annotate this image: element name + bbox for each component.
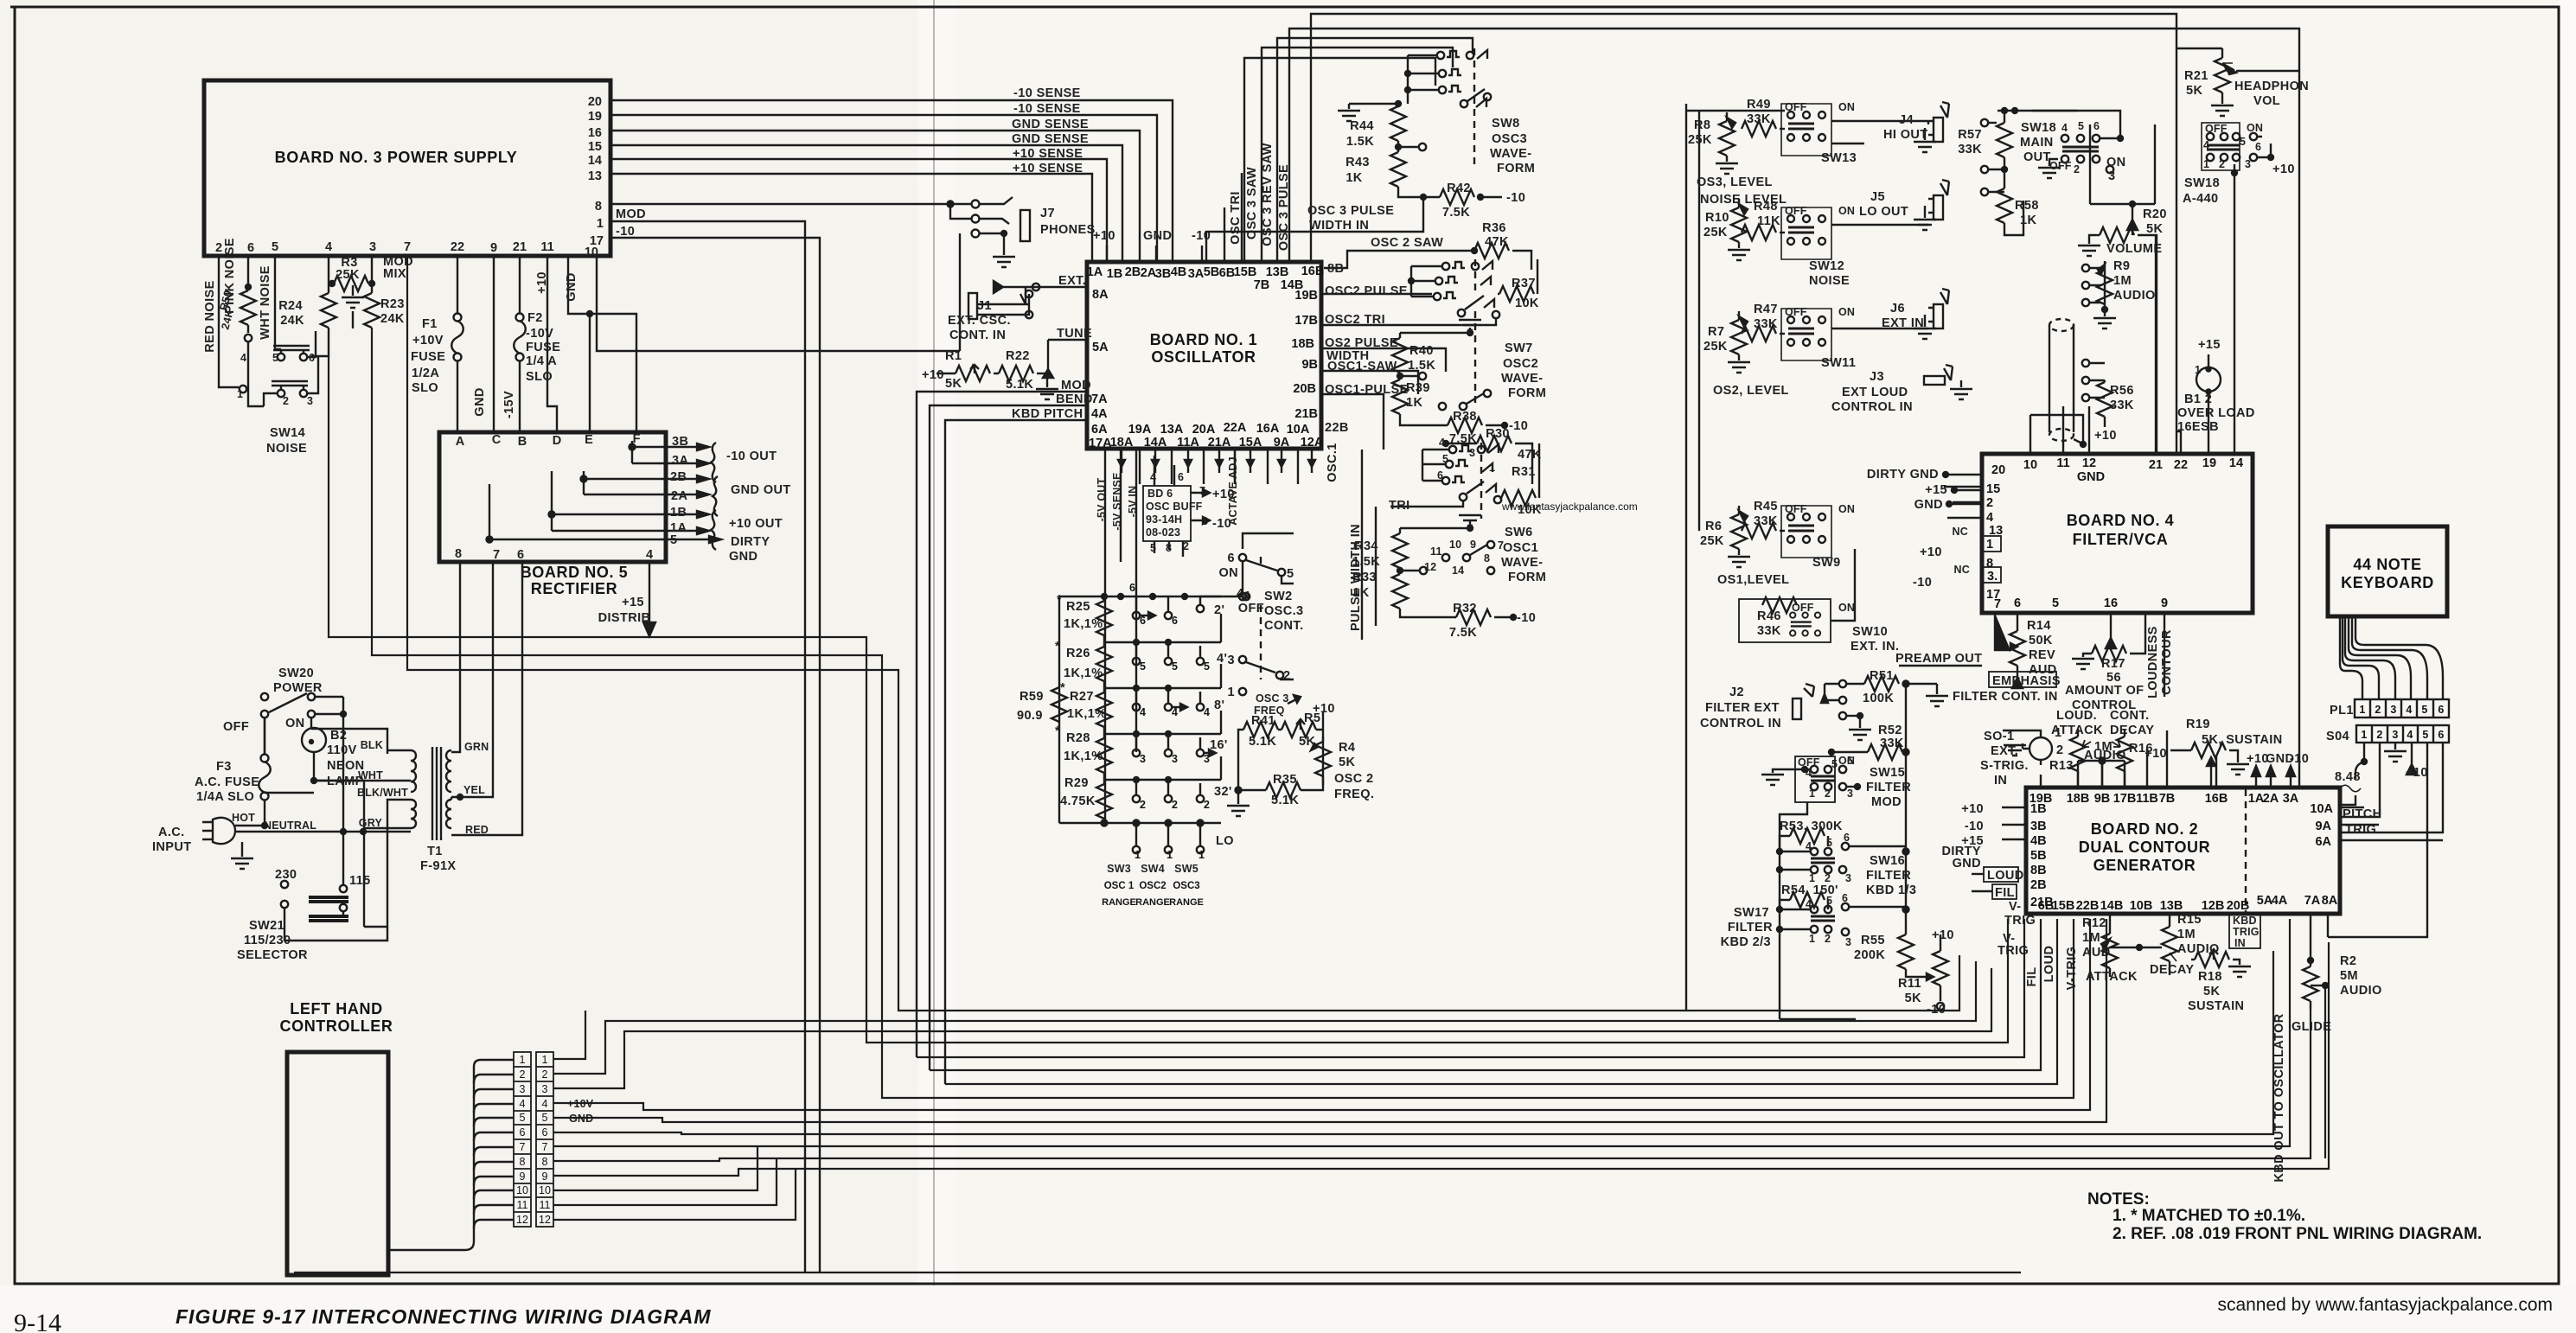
svg-text:R40: R40 <box>1409 344 1434 358</box>
svg-text:6: 6 <box>2255 141 2261 153</box>
svg-text:4A: 4A <box>2272 894 2288 908</box>
svg-text:6B: 6B <box>1219 266 1236 280</box>
svg-text:3B: 3B <box>672 435 688 449</box>
svg-text:8: 8 <box>595 200 602 214</box>
svg-text:HI OUT: HI OUT <box>1883 128 1928 142</box>
svg-text:2: 2 <box>1825 872 1831 884</box>
svg-text:R45: R45 <box>1754 500 1778 513</box>
svg-text:MOD: MOD <box>616 207 646 221</box>
svg-text:1: 1 <box>1489 462 1495 474</box>
svg-text:8: 8 <box>455 547 462 561</box>
svg-text:CONTROLLER: CONTROLLER <box>280 1017 393 1035</box>
svg-text:4: 4 <box>240 352 246 364</box>
svg-text:BOARD NO. 4: BOARD NO. 4 <box>2067 512 2175 529</box>
svg-text:6: 6 <box>2438 704 2444 716</box>
svg-text:R53, 300K: R53, 300K <box>1780 820 1843 833</box>
svg-text:R38: R38 <box>1453 410 1477 424</box>
svg-text:8': 8' <box>1214 698 1224 712</box>
svg-text:5K: 5K <box>1339 756 1355 769</box>
svg-text:SW18: SW18 <box>2021 121 2056 135</box>
svg-text:OSC2: OSC2 <box>1139 881 1166 891</box>
svg-text:OSC2 PULSE: OSC2 PULSE <box>1325 284 1408 298</box>
svg-text:OSC2 TRI: OSC2 TRI <box>1325 313 1385 327</box>
svg-text:25K: 25K <box>1703 340 1728 354</box>
svg-text:OSC 3 PULSE: OSC 3 PULSE <box>1307 204 1394 218</box>
svg-text:5K, SUSTAIN: 5K, SUSTAIN <box>2202 733 2283 747</box>
svg-text:BLK: BLK <box>361 739 383 751</box>
svg-text:9: 9 <box>520 1170 526 1183</box>
svg-text:3: 3 <box>369 240 376 254</box>
svg-text:6: 6 <box>1437 469 1443 482</box>
svg-text:1/4 A: 1/4 A <box>526 354 557 368</box>
svg-text:OFF: OFF <box>1785 306 1807 318</box>
svg-text:5: 5 <box>520 1112 526 1124</box>
svg-text:+10 OUT: +10 OUT <box>729 517 783 531</box>
svg-text:1: 1 <box>2203 158 2209 170</box>
svg-text:4: 4 <box>325 240 332 254</box>
svg-text:1: 1 <box>2361 729 2367 741</box>
svg-text:AUDIO: AUDIO <box>2084 749 2126 762</box>
svg-text:PHONES: PHONES <box>1040 223 1096 237</box>
svg-text:FORM: FORM <box>1497 162 1535 175</box>
svg-text:+15: +15 <box>622 596 644 609</box>
svg-text:12: 12 <box>539 1214 551 1226</box>
svg-text:SLO: SLO <box>412 381 438 395</box>
svg-text:B2: B2 <box>330 729 347 743</box>
svg-text:R18: R18 <box>2198 970 2222 984</box>
svg-text:SW18: SW18 <box>2184 176 2220 190</box>
svg-text:F: F <box>633 432 641 446</box>
svg-text:1: 1 <box>597 217 604 231</box>
svg-text:FREQ.: FREQ. <box>1334 788 1374 801</box>
svg-text:R27: R27 <box>1070 690 1094 704</box>
svg-text:4: 4 <box>1806 767 1812 779</box>
svg-text:NOISE: NOISE <box>1809 274 1850 288</box>
svg-text:7A: 7A <box>2304 894 2321 908</box>
svg-text:16': 16' <box>1210 738 1228 752</box>
svg-text:OSCILLATOR: OSCILLATOR <box>1151 348 1256 366</box>
svg-text:RANGE: RANGE <box>1169 897 1204 908</box>
svg-text:19: 19 <box>588 110 602 124</box>
svg-text:ON: ON <box>1218 566 1238 580</box>
svg-text:DECAY: DECAY <box>2150 963 2194 977</box>
svg-text:TRIG: TRIG <box>2345 823 2376 837</box>
svg-text:GND: GND <box>2077 470 2105 484</box>
svg-text:A-440: A-440 <box>2183 192 2219 206</box>
svg-text:7: 7 <box>404 240 411 254</box>
svg-text:5: 5 <box>1826 837 1832 849</box>
svg-text:2: 2 <box>2375 704 2381 716</box>
svg-text:5: 5 <box>1826 895 1832 907</box>
svg-text:14B: 14B <box>2100 899 2124 913</box>
svg-text:R9: R9 <box>2113 259 2130 273</box>
svg-text:4: 4 <box>646 548 653 562</box>
svg-text:5K: 5K <box>945 377 962 391</box>
svg-text:3: 3 <box>1845 872 1851 884</box>
svg-text:OS2, LEVEL: OS2, LEVEL <box>1713 384 1789 398</box>
svg-text:+10: +10 <box>1920 545 1942 559</box>
svg-text:17B: 17B <box>2113 792 2137 806</box>
svg-text:2: 2 <box>1204 799 1210 811</box>
svg-text:OSC 2: OSC 2 <box>1334 772 1374 786</box>
svg-text:4: 4 <box>2061 122 2068 134</box>
svg-text:3: 3 <box>1172 753 1178 765</box>
svg-text:EXT.: EXT. <box>1991 744 2018 758</box>
svg-text:+10V: +10V <box>412 334 444 348</box>
svg-text:GND: GND <box>1914 498 1943 512</box>
svg-text:B1 2: B1 2 <box>2184 392 2212 406</box>
svg-text:2: 2 <box>2376 729 2382 741</box>
svg-text:7: 7 <box>542 1141 548 1153</box>
svg-text:12B: 12B <box>2202 899 2225 913</box>
svg-text:10: 10 <box>539 1184 551 1196</box>
svg-text:19A: 19A <box>1128 423 1152 437</box>
svg-text:1K: 1K <box>1352 586 1369 600</box>
svg-text:OFF: OFF <box>223 720 249 734</box>
svg-text:R26: R26 <box>1066 647 1090 660</box>
svg-text:7: 7 <box>520 1141 526 1153</box>
svg-text:10B: 10B <box>2130 899 2153 913</box>
svg-text:3.: 3. <box>1987 570 1998 584</box>
svg-text:R25: R25 <box>1066 600 1090 614</box>
svg-text:DUAL CONTOUR: DUAL CONTOUR <box>2079 839 2211 856</box>
svg-text:LEFT HAND: LEFT HAND <box>290 1000 382 1017</box>
svg-text:5: 5 <box>272 352 278 364</box>
svg-text:R23: R23 <box>380 297 405 311</box>
svg-text:7: 7 <box>1498 539 1504 552</box>
svg-text:FIGURE 9-17 INTERCONNECTING WI: FIGURE 9-17 INTERCONNECTING WIRING DIAGR… <box>176 1305 712 1328</box>
svg-text:1/2A: 1/2A <box>412 367 439 380</box>
svg-text:3: 3 <box>1140 753 1146 765</box>
svg-text:R32: R32 <box>1453 602 1477 615</box>
svg-text:5: 5 <box>2421 704 2427 716</box>
svg-text:-10: -10 <box>1509 419 1528 433</box>
svg-text:2: 2 <box>2219 158 2225 170</box>
svg-text:2: 2 <box>2074 163 2080 175</box>
svg-text:ON: ON <box>1838 205 1855 217</box>
svg-text:9: 9 <box>542 1170 548 1183</box>
svg-text:2: 2 <box>1986 496 1993 510</box>
svg-text:4B: 4B <box>2030 834 2047 848</box>
svg-text:R24: R24 <box>278 299 303 313</box>
svg-text:ACTAVE ADJ: ACTAVE ADJ <box>1227 456 1239 526</box>
svg-text:WAVE-: WAVE- <box>1501 372 1543 386</box>
svg-text:18A: 18A <box>1110 436 1134 450</box>
svg-text:-10V: -10V <box>526 327 553 341</box>
svg-text:3B: 3B <box>2030 820 2047 833</box>
svg-text:5: 5 <box>2078 120 2084 132</box>
svg-text:19: 19 <box>2202 456 2216 470</box>
svg-text:R11: R11 <box>1898 977 1921 991</box>
svg-text:1.5K: 1.5K <box>1352 555 1380 569</box>
svg-text:16B: 16B <box>1301 265 1325 278</box>
svg-text:F-91X: F-91X <box>420 859 457 873</box>
svg-text:GND: GND <box>729 550 757 564</box>
svg-text:10: 10 <box>2023 458 2037 472</box>
svg-text:6: 6 <box>247 241 254 255</box>
svg-text:FORM: FORM <box>1508 386 1546 400</box>
svg-text:-10 SENSE: -10 SENSE <box>1013 102 1081 116</box>
svg-text:R13: R13 <box>2049 759 2074 773</box>
svg-text:MOD: MOD <box>1871 795 1902 809</box>
svg-text:ON: ON <box>1838 101 1855 113</box>
svg-text:4: 4 <box>1806 898 1812 910</box>
svg-text:1. * MATCHED TO ±0.1%.: 1. * MATCHED TO ±0.1%. <box>2113 1207 2305 1225</box>
svg-text:3: 3 <box>307 395 313 407</box>
svg-text:+10: +10 <box>535 271 549 294</box>
svg-text:OSC 1: OSC 1 <box>1104 881 1135 891</box>
svg-text:50K: 50K <box>2029 634 2053 647</box>
svg-text:11B: 11B <box>2136 792 2158 806</box>
svg-text:1: 1 <box>1809 933 1815 945</box>
svg-text:15: 15 <box>1986 482 2000 496</box>
svg-text:R21: R21 <box>2184 69 2208 83</box>
svg-text:11: 11 <box>540 240 553 254</box>
svg-text:OSC BUFF: OSC BUFF <box>1146 501 1203 513</box>
svg-text:IN: IN <box>2234 937 2246 949</box>
svg-text:+10: +10 <box>1932 928 1954 942</box>
svg-text:OFF: OFF <box>1785 503 1807 515</box>
svg-text:9: 9 <box>490 241 497 255</box>
svg-text:GND: GND <box>473 387 487 416</box>
svg-text:OS1,LEVEL: OS1,LEVEL <box>1717 573 1789 587</box>
svg-text:SW9: SW9 <box>1812 556 1841 570</box>
svg-text:*: * <box>1060 681 1065 695</box>
svg-text:2A: 2A <box>671 489 687 503</box>
svg-text:6: 6 <box>2014 596 2021 610</box>
svg-text:6: 6 <box>542 1126 548 1138</box>
svg-text:FORM: FORM <box>1508 571 1546 584</box>
svg-text:2: 2 <box>1825 933 1831 945</box>
svg-text:8: 8 <box>520 1156 526 1168</box>
svg-text:-10 SENSE: -10 SENSE <box>1013 86 1081 100</box>
svg-text:10K: 10K <box>1518 503 1542 517</box>
svg-text:33K: 33K <box>1958 143 1982 156</box>
svg-text:6: 6 <box>1129 582 1135 594</box>
svg-text:6: 6 <box>1228 552 1235 565</box>
svg-text:OSC 3: OSC 3 <box>1256 692 1289 705</box>
svg-text:22: 22 <box>2174 458 2188 472</box>
svg-text:FILTER: FILTER <box>1866 781 1911 794</box>
svg-text:8A: 8A <box>2322 894 2338 908</box>
svg-text:5: 5 <box>1442 453 1448 465</box>
svg-text:4': 4' <box>1217 652 1227 666</box>
svg-text:2B: 2B <box>1125 265 1141 279</box>
svg-text:+10: +10 <box>2272 163 2295 176</box>
svg-text:DISTRIB: DISTRIB <box>598 611 651 625</box>
svg-text:1: 1 <box>237 388 243 400</box>
svg-text:1B: 1B <box>2030 802 2047 816</box>
svg-text:WHT: WHT <box>358 769 383 781</box>
svg-text:R12: R12 <box>2082 916 2106 930</box>
svg-text:8B: 8B <box>1327 262 1344 276</box>
svg-text:+10 SENSE: +10 SENSE <box>1013 147 1083 161</box>
svg-text:8B: 8B <box>2030 864 2047 877</box>
svg-text:16B: 16B <box>2205 792 2228 806</box>
svg-text:2: 2 <box>542 1068 548 1081</box>
svg-text:08-023: 08-023 <box>1146 526 1180 539</box>
svg-text:33K: 33K <box>1747 112 1771 126</box>
svg-text:1M: 1M <box>2177 928 2196 941</box>
svg-text:GND SENSE: GND SENSE <box>1012 132 1089 146</box>
svg-text:R34: R34 <box>1354 539 1378 553</box>
svg-text:12A: 12A <box>1301 436 1324 450</box>
svg-text:BOARD NO. 1: BOARD NO. 1 <box>1150 331 1258 348</box>
svg-text:2. REF. .08 .019 FRONT PNL W: 2. REF. .08 .019 FRONT PNL WIRING DIAGRA… <box>2113 1225 2482 1243</box>
svg-text:1M: 1M <box>2082 931 2100 945</box>
svg-text:11: 11 <box>540 1199 551 1211</box>
svg-text:SW11: SW11 <box>1821 356 1856 370</box>
svg-text:MOD: MOD <box>1061 379 1091 392</box>
svg-text:FIL: FIL <box>2025 967 2039 987</box>
svg-text:R1: R1 <box>945 349 962 363</box>
svg-text:44 NOTE: 44 NOTE <box>2353 556 2421 573</box>
svg-text:6: 6 <box>1847 755 1853 767</box>
svg-text:6: 6 <box>309 352 315 364</box>
svg-text:1: 1 <box>1809 788 1815 800</box>
svg-text:+10 SENSE: +10 SENSE <box>1013 162 1083 175</box>
svg-text:2: 2 <box>1172 799 1178 811</box>
svg-text:OFF: OFF <box>1785 205 1807 217</box>
svg-text:1.5K: 1.5K <box>1346 135 1374 149</box>
svg-text:WAVE-: WAVE- <box>1490 147 1531 161</box>
svg-text:OSC 3 SAW: OSC 3 SAW <box>1245 167 1259 239</box>
svg-text:R31: R31 <box>1512 465 1536 479</box>
svg-text:A.C. FUSE: A.C. FUSE <box>195 775 259 789</box>
svg-text:R19: R19 <box>2186 718 2210 731</box>
svg-text:15B: 15B <box>2052 899 2075 913</box>
svg-text:3: 3 <box>1228 654 1235 667</box>
svg-text:+10: +10 <box>922 368 944 382</box>
svg-text:ON: ON <box>285 717 305 730</box>
svg-text:1K: 1K <box>2020 214 2036 227</box>
svg-text:22: 22 <box>451 240 464 254</box>
svg-text:ON: ON <box>2106 156 2126 169</box>
svg-text:4: 4 <box>542 1098 548 1110</box>
svg-text:2': 2' <box>1214 603 1224 617</box>
svg-text:7B: 7B <box>1254 278 1270 292</box>
svg-text:YEL: YEL <box>463 784 485 796</box>
svg-text:9B: 9B <box>2094 792 2111 806</box>
svg-text:R33: R33 <box>1352 571 1377 584</box>
svg-text:2: 2 <box>1140 799 1146 811</box>
svg-text:GND: GND <box>1953 857 1981 871</box>
svg-text:V-: V- <box>2009 900 2022 914</box>
svg-text:4: 4 <box>1439 437 1445 449</box>
svg-text:PL1: PL1 <box>2330 704 2354 718</box>
svg-text:47K: 47K <box>1518 448 1542 462</box>
svg-text:J4: J4 <box>1899 113 1914 127</box>
svg-text:J2: J2 <box>1729 686 1744 699</box>
svg-text:2B: 2B <box>2030 878 2047 892</box>
svg-text:ON: ON <box>1838 602 1855 614</box>
svg-text:1: 1 <box>1986 538 1993 552</box>
svg-text:R29: R29 <box>1064 776 1089 790</box>
svg-text:EXT LOUD: EXT LOUD <box>1842 386 1908 399</box>
svg-text:R51: R51 <box>1870 669 1894 683</box>
svg-text:13: 13 <box>588 169 602 183</box>
svg-text:R28: R28 <box>1066 731 1090 745</box>
svg-text:RECTIFIER: RECTIFIER <box>531 580 617 597</box>
svg-text:1A: 1A <box>1087 265 1103 279</box>
svg-text:5: 5 <box>272 240 278 254</box>
svg-text:NC: NC <box>1954 564 1970 576</box>
svg-text:8: 8 <box>1484 552 1490 564</box>
svg-text:VOLUME: VOLUME <box>2106 242 2162 256</box>
svg-text:22A: 22A <box>1224 421 1247 435</box>
svg-text:LOUD: LOUD <box>2042 946 2056 983</box>
svg-text:5K: 5K <box>2146 222 2163 236</box>
svg-text:MIX: MIX <box>383 267 406 281</box>
svg-text:20A: 20A <box>1192 423 1216 437</box>
svg-text:BOARD NO. 2: BOARD NO. 2 <box>2091 820 2199 838</box>
svg-text:7.5K: 7.5K <box>1449 626 1477 640</box>
svg-text:R57: R57 <box>1958 128 1982 142</box>
svg-text:GENERATOR: GENERATOR <box>2093 857 2196 874</box>
svg-text:SUSTAIN: SUSTAIN <box>2188 999 2244 1013</box>
svg-text:+15: +15 <box>1925 483 1947 497</box>
svg-text:-10: -10 <box>616 225 635 239</box>
svg-text:TRIG: TRIG <box>2004 914 2036 928</box>
svg-text:EXT. CSC.: EXT. CSC. <box>948 314 1011 328</box>
svg-text:5K: 5K <box>2203 985 2220 998</box>
svg-text:14: 14 <box>1452 564 1464 577</box>
svg-text:21B: 21B <box>1294 407 1318 421</box>
svg-text:2A: 2A <box>2263 792 2279 806</box>
svg-text:20B: 20B <box>2227 899 2250 913</box>
svg-text:4: 4 <box>1806 840 1812 852</box>
svg-text:10K: 10K <box>1515 297 1539 310</box>
svg-text:2: 2 <box>1825 788 1831 800</box>
svg-text:1M: 1M <box>2113 274 2132 288</box>
svg-text:5: 5 <box>542 1112 548 1124</box>
svg-text:NOTES:: NOTES: <box>2087 1190 2150 1209</box>
svg-text:C: C <box>492 433 502 447</box>
svg-text:OSC TRI: OSC TRI <box>1229 191 1243 245</box>
svg-text:6A: 6A <box>2315 835 2331 849</box>
svg-text:SW21: SW21 <box>249 919 284 933</box>
svg-text:17A: 17A <box>1089 437 1112 450</box>
svg-text:GRY: GRY <box>359 817 383 829</box>
svg-text:DIRTY: DIRTY <box>731 535 770 549</box>
svg-text:BLK/WHT: BLK/WHT <box>357 787 408 799</box>
svg-text:3: 3 <box>2245 158 2251 170</box>
svg-text:R42: R42 <box>1447 182 1471 195</box>
svg-text:+10: +10 <box>2145 747 2167 761</box>
svg-text:3: 3 <box>2392 729 2398 741</box>
svg-text:HEADPHON: HEADPHON <box>2234 80 2309 93</box>
svg-text:GND OUT: GND OUT <box>731 483 791 497</box>
svg-text:OSC2: OSC2 <box>1503 357 1538 371</box>
svg-text:KBD OUT TO OSCILLATOR: KBD OUT TO OSCILLATOR <box>2272 1013 2286 1182</box>
svg-text:1: 1 <box>1228 686 1235 699</box>
svg-text:11: 11 <box>517 1199 528 1211</box>
svg-text:4: 4 <box>1986 511 1993 525</box>
svg-text:R10: R10 <box>1705 211 1729 225</box>
svg-text:scanned by www.fantasyjackpala: scanned by www.fantasyjackpalance.com <box>2217 1295 2553 1315</box>
svg-text:2: 2 <box>2056 743 2063 757</box>
svg-text:R30: R30 <box>1486 427 1510 441</box>
svg-text:SW4: SW4 <box>1141 863 1165 875</box>
svg-text:GND: GND <box>1143 229 1172 243</box>
svg-text:-10: -10 <box>1506 191 1525 205</box>
svg-text:R6: R6 <box>1705 520 1722 533</box>
svg-text:SW3: SW3 <box>1107 863 1131 875</box>
svg-text:R55: R55 <box>1861 934 1885 947</box>
svg-text:14: 14 <box>2229 456 2243 470</box>
svg-text:TUNE: TUNE <box>1057 327 1092 341</box>
svg-text:OSC1: OSC1 <box>1503 541 1538 555</box>
